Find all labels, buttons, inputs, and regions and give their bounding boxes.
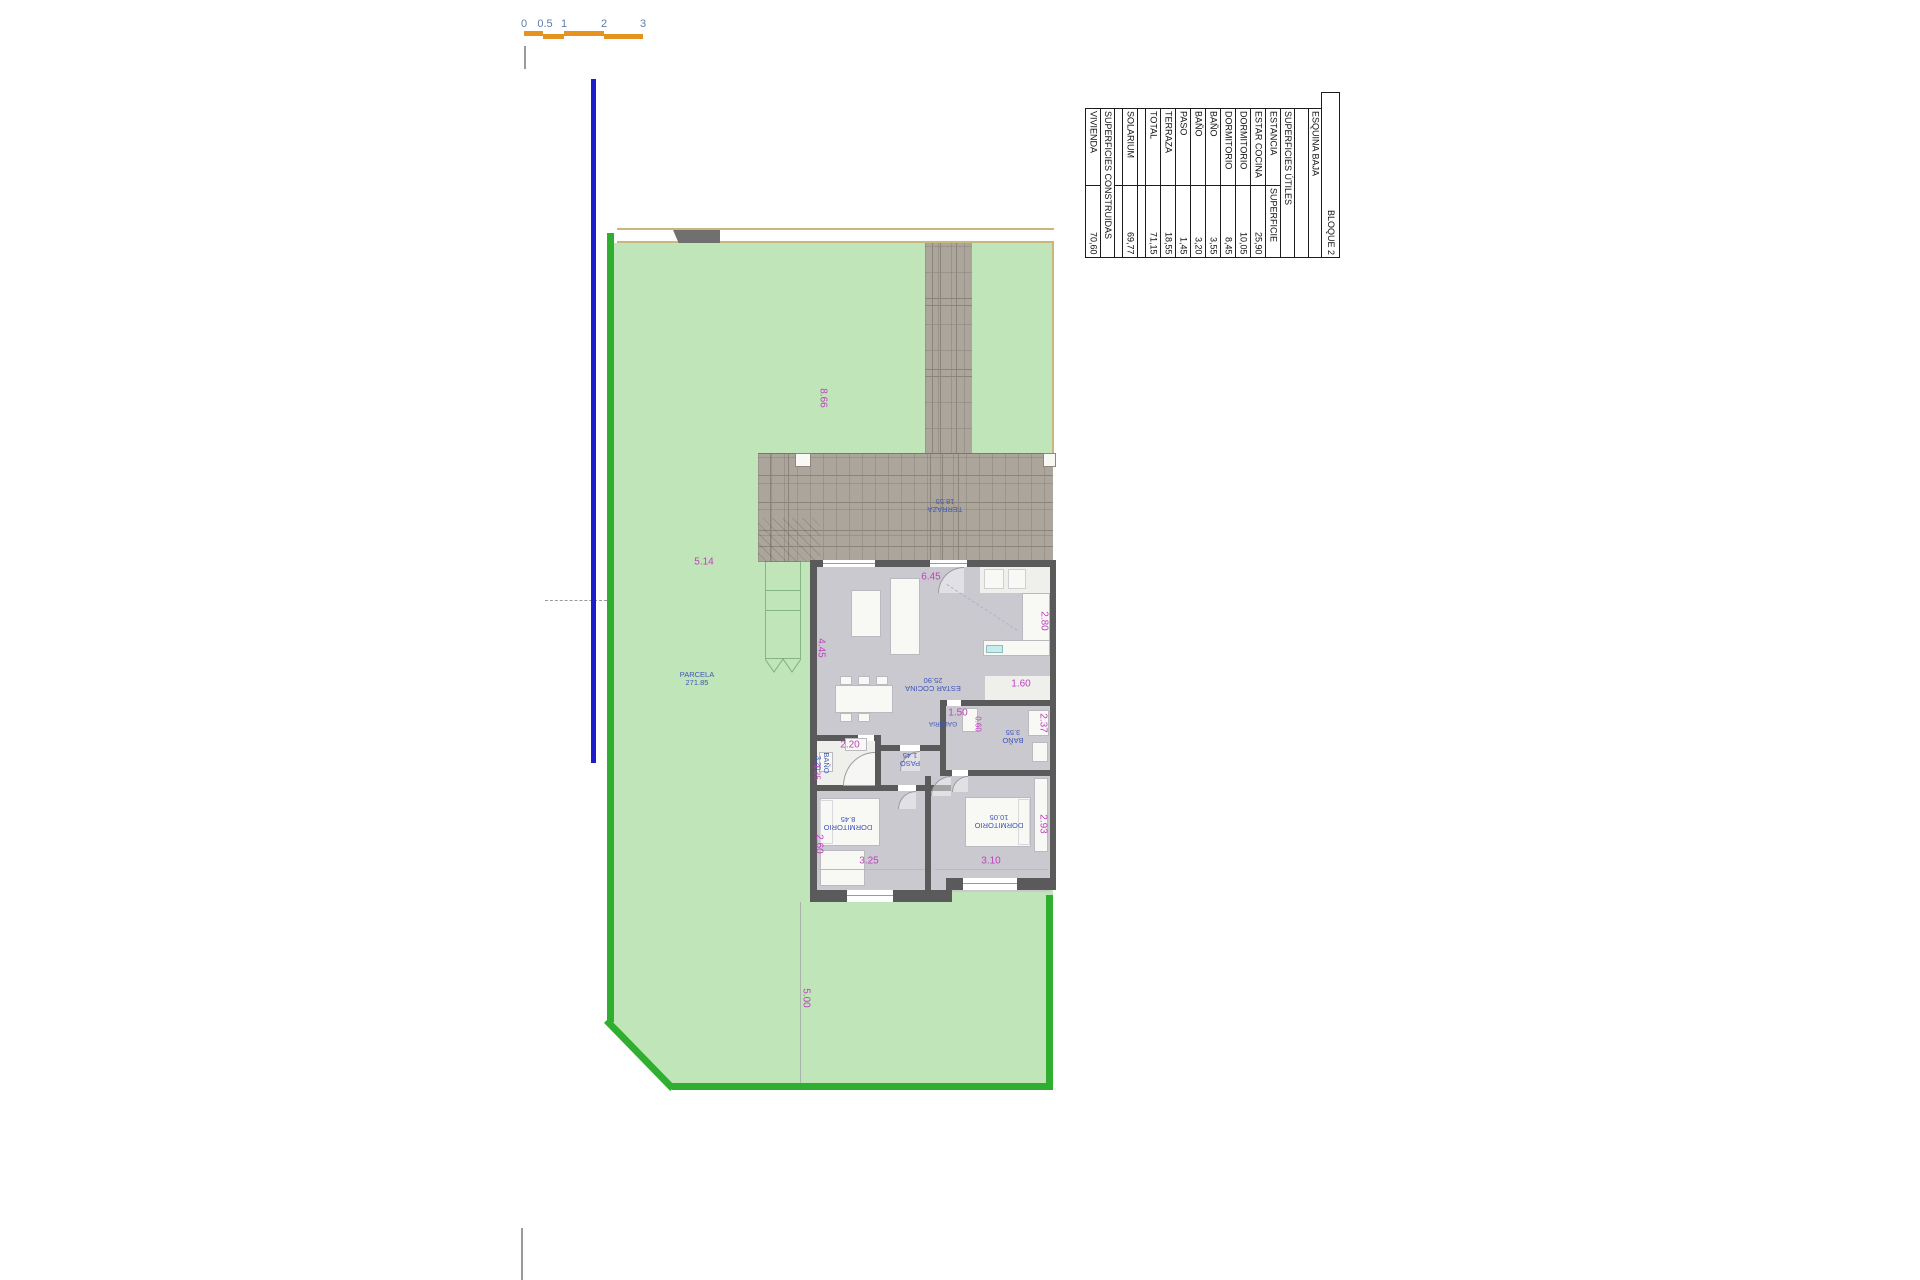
dim-645: 6.45 [921,572,940,583]
table-col-subtitle: ESQUINA BAJA [1308,108,1322,258]
dim-280: 2.80 [1039,611,1050,630]
terraza-label: TERRAZA18.55 [927,497,962,513]
bano1-label: BAÑO3.55 [1002,728,1023,744]
dim-135: 1.35 [813,764,822,780]
paso-label: PASO1.45 [900,751,920,767]
parcel-border-right [1046,895,1053,1090]
wall-step [946,878,952,902]
dining-table [835,685,893,713]
kitchen-sink [986,645,1003,653]
scale-segment [524,31,543,36]
dim-500: 5.00 [801,988,812,1007]
terrace-door-opening [823,560,875,567]
table-col-title: BLOQUE 2 [1321,92,1340,258]
dim-260: 2.60 [814,834,825,853]
chair [876,676,888,685]
dormitorio2-label: DORMITORIO10.05 [975,813,1024,829]
scale-segment [564,31,604,36]
access-path [925,243,972,455]
table-row-dormitorio-1: DORMITORIO 10,05 [1235,108,1251,258]
table-col-headers: ESTANCIA SUPERFICIE [1265,108,1281,258]
door-galeria [947,700,961,706]
side-stairs [765,561,801,659]
parcel-border-left [607,233,614,1022]
wardrobe-living [890,578,920,655]
terrace-pillar-left [795,453,811,467]
dormitorio1-label: DORMITORIO8.45 [824,815,873,831]
terrace [758,453,1053,562]
dim-220: 2.20 [840,740,859,751]
table-col-spacer [1294,108,1309,258]
scale-segment [604,34,643,39]
galeria-label: GALERIA [929,719,957,727]
blue-boundary-line [591,79,596,763]
sheet-margin-tick-top [524,46,526,69]
sheet-margin-tick-bottom [521,1228,523,1280]
surface-summary-table: BLOQUE 2 ESQUINA BAJA SUPERFICIES ÚTILES… [1085,92,1339,258]
scale-tick-1: 1 [561,18,567,30]
chair [840,676,852,685]
entrance-opening [930,560,967,567]
table-col-useful-header: SUPERFICIES ÚTILES [1280,108,1295,258]
wall-galeria-left [940,700,946,776]
dim-310: 3.10 [981,856,1000,867]
dim-witness-line [818,869,925,870]
table-row-bano-2: BAÑO 3,20 [1190,108,1206,258]
chair [858,713,870,722]
dim-160: 1.60 [1011,679,1030,690]
table-row-solarium: SOLARIUM 69,77 [1122,108,1138,258]
dim-237: 2.37 [1038,713,1049,732]
table-col-built-header: SUPERFICIES CONSTRUIDAS [1100,108,1115,258]
table-subtitle: ESQUINA BAJA [1311,109,1320,257]
scale-tick-2: 2 [601,18,607,30]
chair [840,713,852,722]
table-row-bano-1: BAÑO 3,55 [1205,108,1221,258]
scale-tick-0: 0 [521,18,527,30]
dim-150: 1.50 [948,708,967,719]
bath1-toilet [1032,742,1048,762]
terrace-ramp-hatch [758,518,820,562]
dim-445: 4.45 [816,638,827,657]
table-row-dormitorio-2: DORMITORIO 8,45 [1220,108,1236,258]
dim-866: 8.66 [818,388,829,407]
stairs-zigzag-icon [765,658,801,674]
wall-right [1050,560,1056,890]
boundary-dashed-line [545,600,607,601]
scale-tick-3: 3 [640,18,646,30]
bed2-bedroom1 [820,850,865,886]
dim-293: 2.93 [1038,814,1049,833]
window-bedroom1 [847,890,893,902]
table-row-terraza: TERRAZA 18,55 [1160,108,1176,258]
scale-tick-05: 0.5 [537,18,552,30]
appliance [984,569,1004,589]
dim-325: 3.25 [859,856,878,867]
wall-bath2-right [875,735,881,791]
scale-segment [543,34,564,39]
sofa [851,590,881,637]
parcela-label: PARCELA271.85 [680,671,714,687]
parcel-edge-right-upper [1052,243,1054,458]
entrance-gate-marker [673,230,720,243]
estar-cocina-label: ESTAR COCINA25.90 [905,676,961,692]
table-row-estar-cocina: ESTAR COCINA 25,90 [1250,108,1266,258]
dim-060: 0.60 [974,716,983,732]
floor-plan-sheet: 0 0.5 1 2 3 [0,0,1920,1280]
parcel-border-bottom [672,1083,1053,1090]
table-row-vivienda: VIVIENDA 70,60 [1085,108,1101,258]
dim-514: 5.14 [694,557,713,568]
table-title: BLOQUE 2 [1326,210,1335,257]
table-row-paso: PASO 1,45 [1175,108,1191,258]
appliance [1008,569,1026,589]
dim-witness-line [935,869,1048,870]
chair [858,676,870,685]
table-row-total: TOTAL 71,15 [1145,108,1161,258]
window-bedroom2 [963,878,1017,890]
terrace-pillar-right [1043,453,1056,467]
